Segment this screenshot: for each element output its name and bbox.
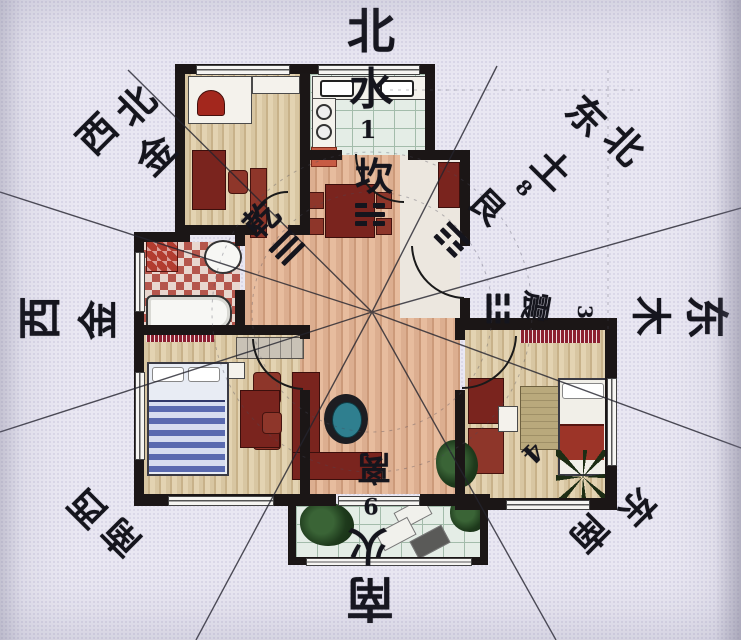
label-north: 北	[347, 9, 395, 57]
dining-chair	[308, 192, 324, 209]
burner	[316, 104, 332, 120]
label-southeast: 东	[612, 482, 663, 533]
burner	[316, 124, 332, 140]
pillow	[562, 383, 604, 399]
label-southeast: 南	[564, 508, 615, 559]
red-dome-lamp	[197, 90, 225, 116]
cabinet	[252, 76, 300, 94]
wall	[300, 390, 310, 494]
number-north: 1	[360, 118, 377, 142]
window	[506, 500, 590, 510]
label-trigram-li: 离	[357, 449, 391, 483]
wall	[455, 318, 465, 340]
balcony-window	[306, 558, 472, 566]
wall	[455, 390, 465, 502]
dining-chair	[308, 218, 324, 235]
label-southwest: 南	[97, 512, 148, 563]
wall	[408, 150, 470, 160]
label-element-wood: 木	[630, 296, 670, 336]
washing-machine	[146, 240, 178, 272]
number-northeast: 8	[512, 176, 536, 200]
pillow	[188, 367, 220, 382]
label-northeast: 东	[558, 90, 612, 144]
label-west: 西	[19, 296, 63, 340]
wall	[425, 64, 435, 160]
blanket	[149, 400, 225, 472]
wall	[235, 290, 245, 330]
label-northwest: 北	[110, 80, 164, 134]
side-table	[498, 406, 518, 432]
fengshui-floorplan: 北 南 西 东 西 北 东 北 西 南 东 南 水 金 土 金 木 火 坎 乾 …	[0, 0, 741, 640]
label-element-metal-w: 金	[79, 300, 119, 340]
hall-cabinet	[438, 162, 460, 208]
label-element-water: 水	[349, 68, 393, 112]
desk-chair	[228, 170, 248, 194]
label-northeast: 北	[596, 119, 650, 173]
wall	[300, 325, 310, 339]
wall	[310, 150, 342, 160]
label-northwest: 西	[71, 108, 125, 162]
coffee-table-top	[332, 402, 362, 438]
window	[168, 496, 274, 506]
window	[135, 372, 145, 460]
balcony-wall	[288, 500, 296, 564]
zhen-trigram-symbol	[487, 294, 510, 324]
window	[607, 378, 617, 466]
pillow	[152, 367, 184, 382]
number-east: 3	[575, 305, 595, 319]
label-south: 南	[346, 573, 394, 621]
balcony-door-sill	[338, 496, 420, 506]
wall	[290, 494, 336, 506]
balcony-plant-left	[300, 502, 354, 546]
window	[196, 65, 290, 75]
label-trigram-kan: 坎	[355, 159, 393, 197]
wardrobe	[236, 337, 304, 359]
watermark-strip	[520, 329, 600, 343]
bedroom-chair	[262, 412, 282, 434]
window	[135, 252, 145, 312]
balcony-wall	[480, 500, 488, 564]
label-east: 东	[683, 295, 727, 339]
plant	[556, 450, 610, 504]
number-south: 9	[363, 494, 378, 516]
desk	[192, 150, 226, 210]
label-trigram-zhen: 震	[517, 289, 552, 324]
wall	[134, 325, 310, 335]
kan-trigram-symbol	[355, 203, 385, 226]
wall	[235, 232, 245, 246]
nightstand	[228, 362, 245, 379]
label-element-fire: 火	[348, 525, 388, 565]
wall	[300, 64, 310, 232]
